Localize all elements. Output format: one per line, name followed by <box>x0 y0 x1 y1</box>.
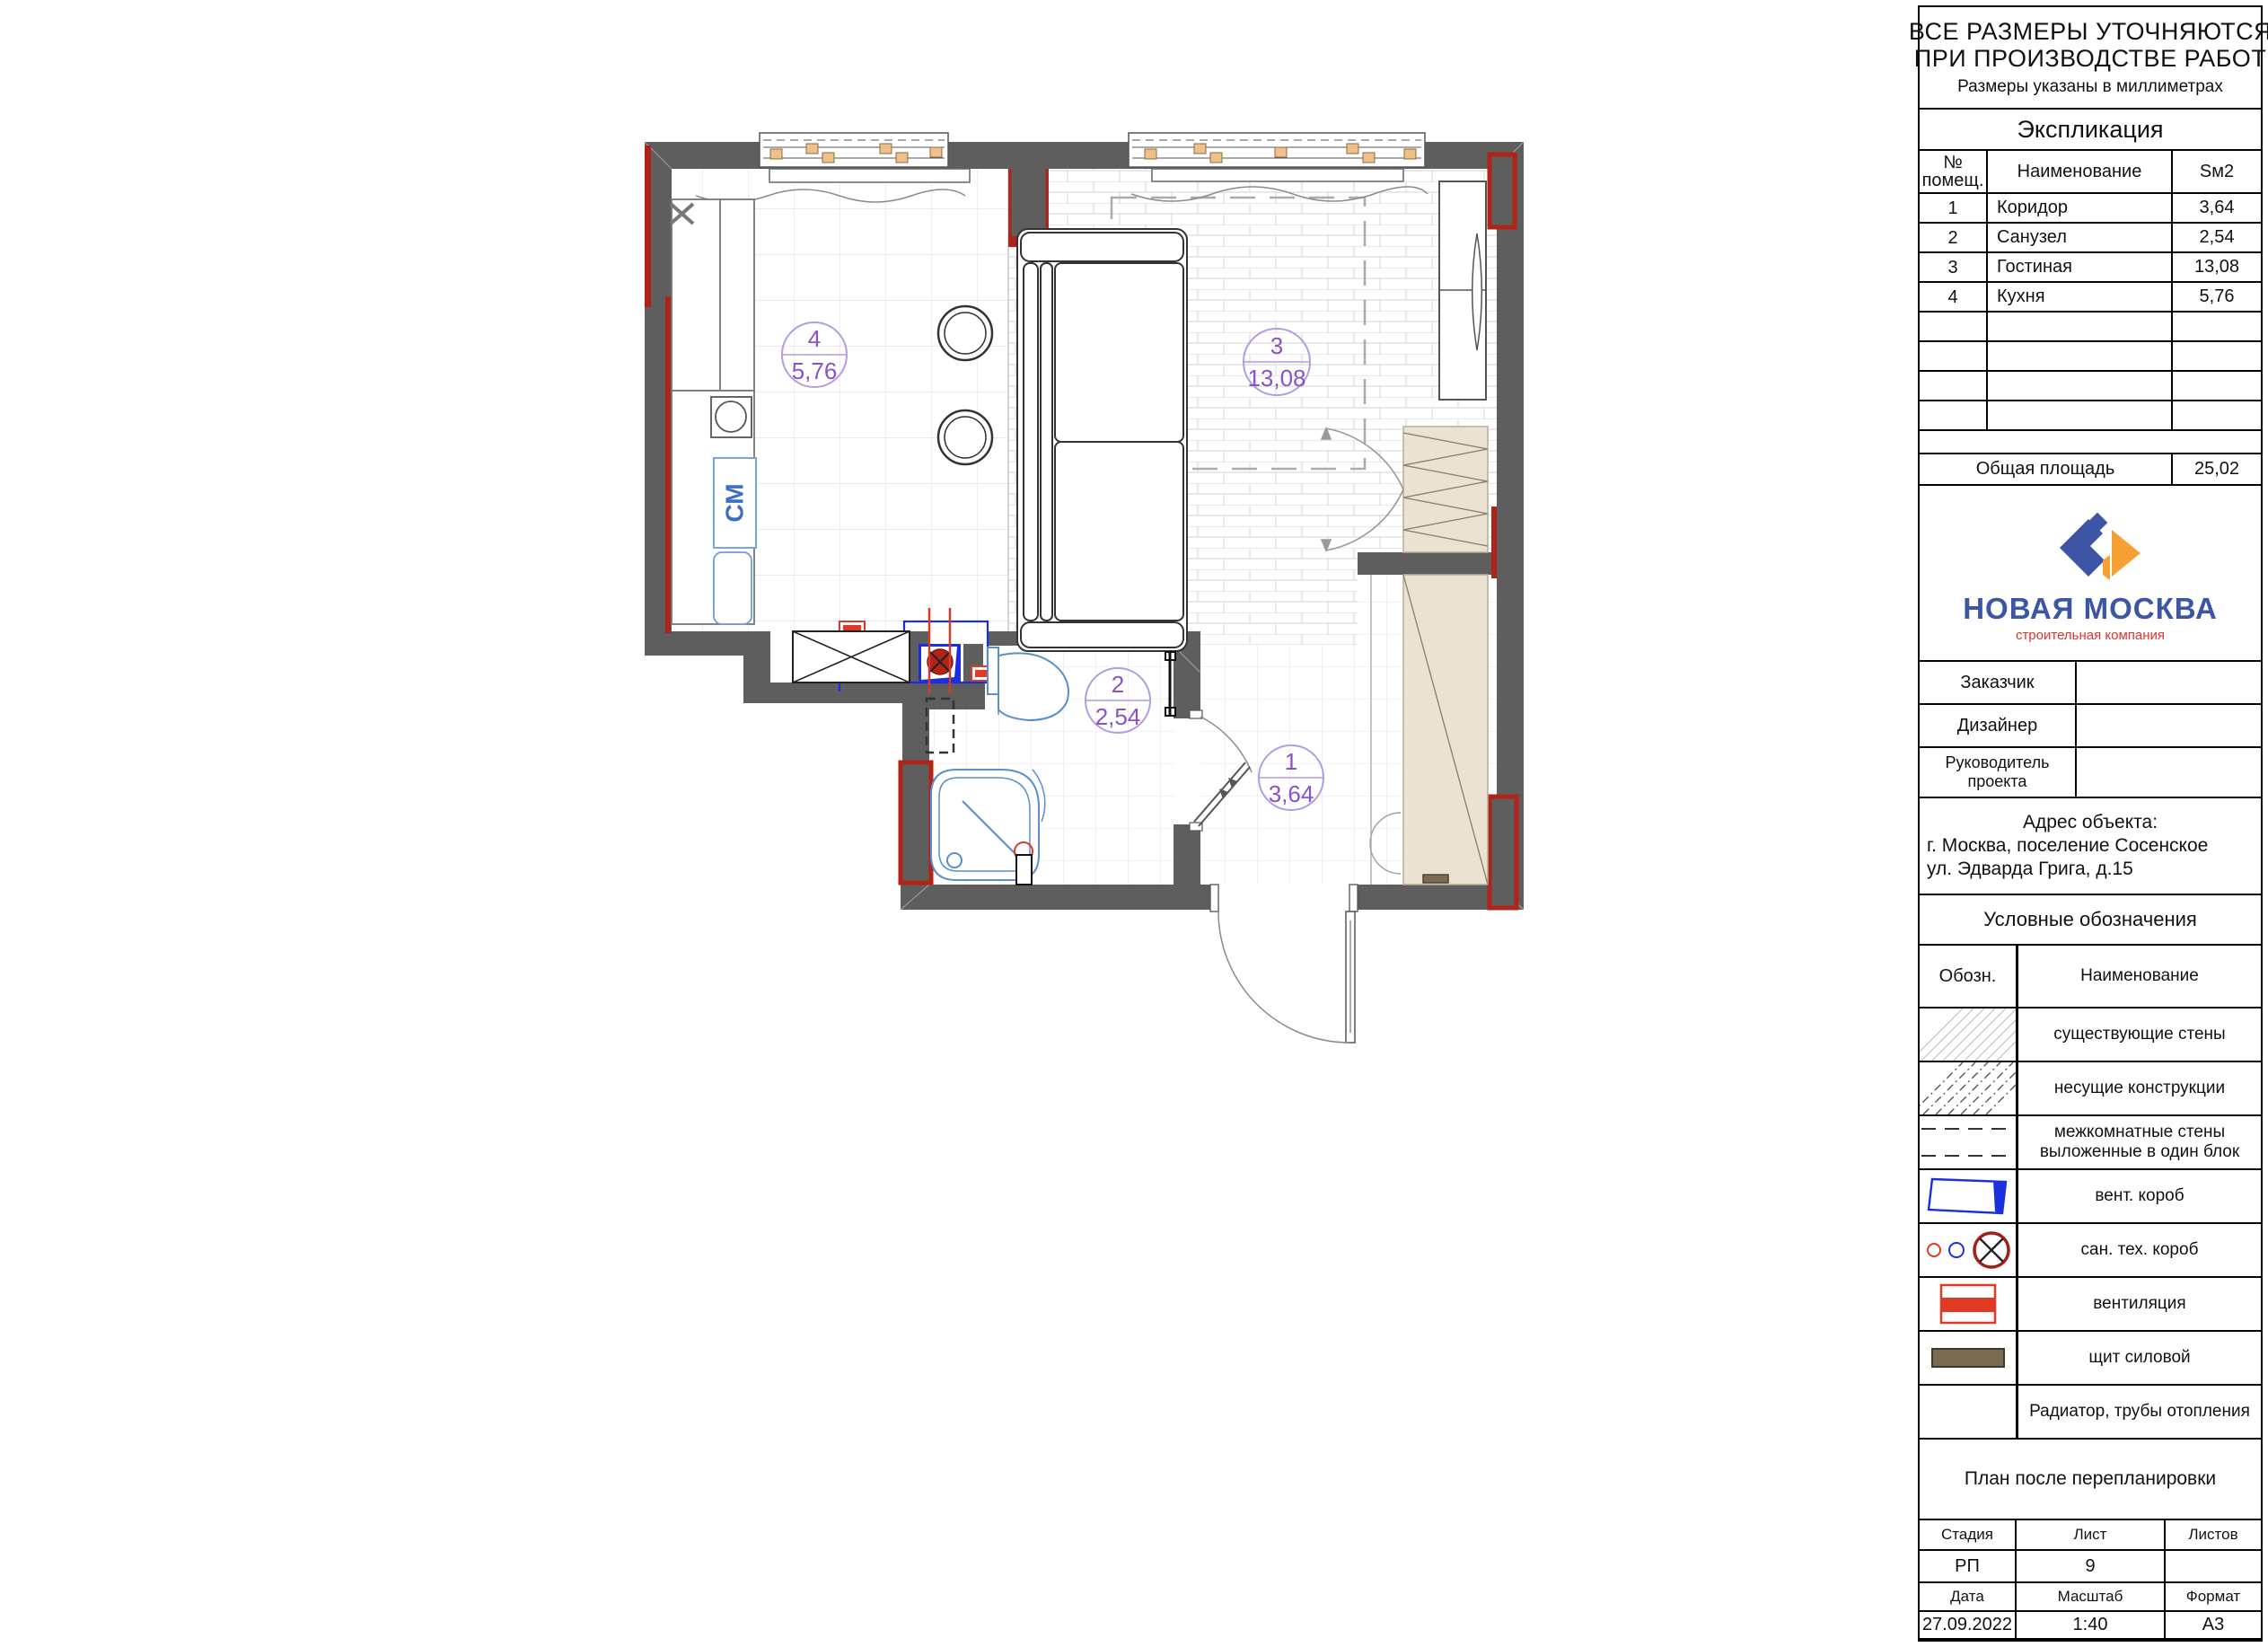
row-num: 4 <box>1920 283 1988 311</box>
radiator-wall-bottom-right <box>1490 797 1516 908</box>
room-number: 4 <box>808 325 821 352</box>
manager-value <box>2077 748 2261 797</box>
address-block: Адрес объекта: г. Москва, поселение Сосе… <box>1920 798 2261 895</box>
address-title: Адрес объекта: <box>1927 811 2254 834</box>
form-row-designer: Дизайнер <box>1920 705 2261 748</box>
table-row-empty <box>1920 401 2261 431</box>
notice-line-1: ВСЕ РАЗМЕРЫ УТОЧНЯЮТСЯ <box>1909 18 2268 45</box>
room-label-corridor: 1 3,64 <box>1259 745 1323 810</box>
wall-step <box>743 631 770 703</box>
stage-label: Стадия <box>1920 1520 2017 1551</box>
wardrobe-living <box>1403 427 1488 552</box>
washing-machine-label: СМ <box>720 483 748 522</box>
col-header-num: № помещ. <box>1920 151 1988 192</box>
stage-value: РП <box>1920 1551 2017 1583</box>
explication-title: Экспликация <box>1920 110 2261 151</box>
room-number: 1 <box>1285 748 1297 775</box>
shower <box>931 770 1045 885</box>
table-row-empty <box>1920 372 2261 401</box>
room-area: 5,76 <box>792 357 838 384</box>
scale-label: Масштаб <box>2017 1583 2166 1612</box>
col-header-area: Sм2 <box>2173 151 2261 192</box>
logo-tagline: строительная компания <box>2016 628 2165 643</box>
col-header-num-line2: помещ. <box>1922 172 1984 189</box>
total-area-label: Общая площадь <box>1920 454 2173 484</box>
sofa <box>1017 229 1187 651</box>
washing-machine: СМ <box>714 458 756 548</box>
table-row-empty <box>1920 342 2261 372</box>
title-block: ВСЕ РАЗМЕРЫ УТОЧНЯЮТСЯ ПРИ ПРОИЗВОДСТВЕ … <box>1918 5 2263 1642</box>
row-area: 5,76 <box>2173 283 2261 311</box>
col-header-num-line1: № <box>1943 154 1962 172</box>
total-area-value: 25,02 <box>2173 454 2261 484</box>
table-row: 1 Коридор 3,64 <box>1920 194 2261 224</box>
tv-cabinet <box>1439 181 1486 400</box>
room-number: 2 <box>1112 671 1124 698</box>
room-area: 13,08 <box>1247 365 1305 392</box>
legend-title: Условные обозначения <box>1920 895 2261 946</box>
designer-value <box>2077 705 2261 746</box>
customer-value <box>2077 662 2261 703</box>
bar-stool-2 <box>938 410 992 464</box>
radiator-wall-top-right <box>1490 154 1515 227</box>
legend-header-row: Обозн. Наименование <box>1920 946 2261 1008</box>
table-spacer <box>1920 431 2261 454</box>
wall-bath-right-upper <box>1174 646 1200 718</box>
row-name: Гостиная <box>1988 253 2173 281</box>
row-name: Коридор <box>1988 194 2173 222</box>
row-name: Санузел <box>1988 224 2173 251</box>
entry-door <box>1210 885 1358 1043</box>
manager-label-line1: Руководитель <box>1946 753 2050 772</box>
date-value: 27.09.2022 <box>1920 1612 2017 1640</box>
manager-label-line2: проекта <box>1968 772 2027 791</box>
radiator-under-window-2 <box>1152 169 1403 181</box>
legend-row-power-board: щит силовой <box>1920 1332 2261 1386</box>
power-board <box>1423 875 1448 883</box>
logo-mark-icon <box>2035 503 2147 588</box>
existing-walls-hatch-icon <box>1920 1008 2018 1061</box>
sheet-number: 9 <box>2017 1551 2166 1583</box>
notice-subtitle: Размеры указаны в миллиметрах <box>1957 77 2223 97</box>
row-area: 3,64 <box>2173 194 2261 222</box>
ventilation-icon <box>1920 1278 2018 1330</box>
infilled-opening <box>793 631 910 683</box>
legend-row-interior-walls: межкомнатные стены выложенные в один бло… <box>1920 1116 2261 1170</box>
radiator-symbol-empty <box>1920 1386 2018 1438</box>
notice-line-2: ПРИ ПРОИЗВОДСТВЕ РАБОТ <box>1914 45 2266 72</box>
room-number: 3 <box>1270 332 1283 359</box>
room-area: 3,64 <box>1269 780 1314 807</box>
radiator-wall-bathroom <box>901 762 931 883</box>
row-num: 3 <box>1920 253 1988 281</box>
explication-header-row: № помещ. Наименование Sм2 <box>1920 151 2261 194</box>
sheet-label: Лист <box>2017 1520 2166 1551</box>
row-num: 2 <box>1920 224 1988 251</box>
format-value: А3 <box>2166 1612 2261 1640</box>
wall-bath-right-lower <box>1174 824 1200 885</box>
wall-vent-niche <box>904 683 985 709</box>
wardrobe-corridor <box>1403 575 1488 885</box>
room-area: 2,54 <box>1095 703 1141 730</box>
radiator-under-window-1 <box>769 169 970 182</box>
table-row: 3 Гостиная 13,08 <box>1920 253 2261 283</box>
bar-stool-1 <box>938 306 992 360</box>
explication-table: № помещ. Наименование Sм2 1 Коридор 3,64… <box>1920 151 2261 486</box>
form-row-manager: Руководитель проекта <box>1920 748 2261 798</box>
power-board-icon <box>1920 1332 2018 1384</box>
legend-row-bearing-structures: несущие конструкции <box>1920 1062 2261 1116</box>
logo-company-name: НОВАЯ МОСКВА <box>1963 592 2218 626</box>
dishwasher <box>714 552 752 624</box>
legend-col-name: Наименование <box>2018 946 2261 1007</box>
sheets-label: Листов <box>2166 1520 2261 1551</box>
stamp-table: Стадия Лист Листов РП 9 Дата Масштаб Фор… <box>1920 1520 2261 1640</box>
row-area: 2,54 <box>2173 224 2261 251</box>
window-1 <box>760 133 948 167</box>
wall-bottom-left <box>901 885 1218 910</box>
wall-bath-top-left <box>770 683 904 703</box>
table-row: 4 Кухня 5,76 <box>1920 283 2261 313</box>
row-area: 13,08 <box>2173 253 2261 281</box>
notice-block: ВСЕ РАЗМЕРЫ УТОЧНЯЮТСЯ ПРИ ПРОИЗВОДСТВЕ … <box>1920 7 2261 110</box>
interior-walls-dashed-icon <box>1920 1116 2018 1168</box>
row-name: Кухня <box>1988 283 2173 311</box>
customer-label: Заказчик <box>1920 662 2077 703</box>
manager-label: Руководитель проекта <box>1920 748 2077 797</box>
company-logo: НОВАЯ МОСКВА строительная компания <box>1920 486 2261 662</box>
address-line-2: ул. Эдварда Грига, д.15 <box>1927 858 2254 881</box>
floor-plan: СМ <box>611 117 1535 1293</box>
room-label-bathroom: 2 2,54 <box>1086 668 1150 733</box>
legend-row-vent-duct: вент. короб <box>1920 1170 2261 1224</box>
designer-label: Дизайнер <box>1920 705 2077 746</box>
floor-plan-drawing: СМ <box>611 117 1535 1293</box>
form-row-customer: Заказчик <box>1920 662 2261 705</box>
col-header-name: Наименование <box>1988 151 2173 192</box>
sheets-value <box>2166 1551 2261 1583</box>
vent-duct-icon <box>1920 1170 2018 1222</box>
legend-col-symbol: Обозн. <box>1920 946 2018 1007</box>
format-label: Формат <box>2166 1583 2261 1612</box>
scale-value: 1:40 <box>2017 1612 2166 1640</box>
window-2 <box>1129 133 1425 167</box>
table-row: 2 Санузел 2,54 <box>1920 224 2261 253</box>
legend-row-ventilation: вентиляция <box>1920 1278 2261 1332</box>
bearing-structures-hatch-icon <box>1920 1062 2018 1114</box>
legend-row-san-tech-duct: сан. тех. короб <box>1920 1224 2261 1278</box>
legend-row-radiator: Радиатор, трубы отопления <box>1920 1386 2261 1440</box>
san-tech-duct-icon <box>1920 1224 2018 1276</box>
date-label: Дата <box>1920 1583 2017 1612</box>
table-row-empty <box>1920 313 2261 342</box>
wall-living-corridor <box>1358 552 1497 575</box>
room-label-living: 3 13,08 <box>1244 329 1310 395</box>
room-label-kitchen: 4 5,76 <box>782 322 847 387</box>
row-num: 1 <box>1920 194 1988 222</box>
total-area-row: Общая площадь 25,02 <box>1920 454 2261 486</box>
drawing-title: План после перепланировки <box>1920 1440 2261 1520</box>
legend-row-existing-walls: существующие стены <box>1920 1008 2261 1062</box>
address-line-1: г. Москва, поселение Сосенское <box>1927 834 2254 858</box>
